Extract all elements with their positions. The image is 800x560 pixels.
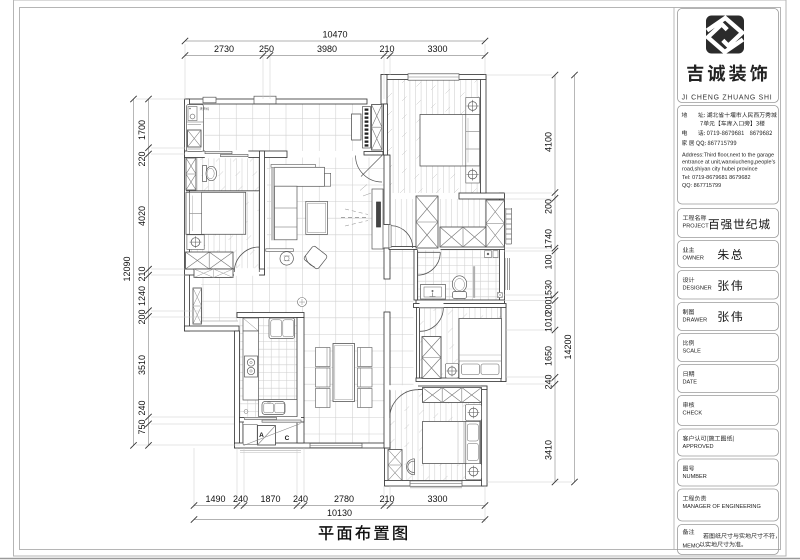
- svg-text:entrance at unit,wanxiucheng,p: entrance at unit,wanxiucheng,people's: [682, 160, 776, 166]
- svg-text:1530: 1530: [544, 280, 554, 300]
- svg-text:200: 200: [544, 199, 554, 214]
- svg-text:2730: 2730: [214, 44, 234, 54]
- svg-text:3510: 3510: [137, 355, 147, 375]
- svg-text:CHECK: CHECK: [683, 411, 703, 417]
- svg-text:1490: 1490: [205, 494, 225, 504]
- svg-text:DRAWER: DRAWER: [683, 318, 708, 324]
- svg-text:4100: 4100: [544, 132, 554, 152]
- svg-text:200: 200: [137, 309, 147, 324]
- svg-text:10130: 10130: [327, 508, 352, 518]
- svg-text:OWNER: OWNER: [683, 256, 704, 262]
- svg-text:1650: 1650: [544, 346, 554, 366]
- svg-text:240: 240: [233, 494, 248, 504]
- svg-text:MEMO: MEMO: [683, 544, 701, 550]
- svg-text:NUMBER: NUMBER: [683, 474, 707, 480]
- svg-text:750: 750: [137, 419, 147, 434]
- svg-text:240: 240: [137, 400, 147, 415]
- svg-text:220: 220: [137, 151, 147, 166]
- svg-text:2780: 2780: [334, 494, 354, 504]
- svg-text:10470: 10470: [322, 30, 347, 40]
- svg-text:3980: 3980: [317, 44, 337, 54]
- svg-text:240: 240: [544, 374, 554, 389]
- svg-text:SCALE: SCALE: [683, 349, 702, 355]
- svg-text:210: 210: [137, 266, 147, 281]
- svg-text:1010: 1010: [544, 312, 554, 332]
- svg-text:100: 100: [544, 254, 554, 269]
- svg-text:DATE: DATE: [683, 380, 698, 386]
- svg-text:1240: 1240: [137, 286, 147, 306]
- svg-text:4020: 4020: [137, 206, 147, 226]
- svg-text:PROJECT: PROJECT: [683, 224, 710, 230]
- svg-text:1870: 1870: [260, 494, 280, 504]
- svg-text:MANAGER OF ENGINEERING: MANAGER OF ENGINEERING: [683, 504, 761, 510]
- svg-text:12090: 12090: [122, 256, 132, 281]
- svg-text:A: A: [259, 432, 264, 439]
- svg-text:DESIGNER: DESIGNER: [683, 286, 712, 292]
- svg-text:Address:Third floor,next to th: Address:Third floor,next to the garage: [682, 153, 774, 159]
- svg-text:3300: 3300: [427, 494, 447, 504]
- svg-text:road,shiyan city hubei provinc: road,shiyan city hubei province: [682, 167, 758, 173]
- svg-text:JI CHENG ZHUANG SHI: JI CHENG ZHUANG SHI: [682, 95, 773, 102]
- svg-text:3410: 3410: [544, 440, 554, 460]
- svg-text:210: 210: [379, 44, 394, 54]
- svg-text:14200: 14200: [563, 334, 573, 359]
- svg-text:3300: 3300: [427, 44, 447, 54]
- svg-text:210: 210: [379, 494, 394, 504]
- svg-text:1740: 1740: [544, 229, 554, 249]
- svg-text:1700: 1700: [137, 120, 147, 140]
- svg-text:C: C: [285, 435, 290, 442]
- svg-text:QQ: 867715799: QQ: 867715799: [682, 183, 721, 189]
- svg-text:APPROVED: APPROVED: [683, 444, 714, 450]
- svg-text:Tel: 0719-8679681 8679682: Tel: 0719-8679681 8679682: [682, 175, 751, 181]
- svg-text:250: 250: [259, 44, 274, 54]
- svg-text:240: 240: [293, 494, 308, 504]
